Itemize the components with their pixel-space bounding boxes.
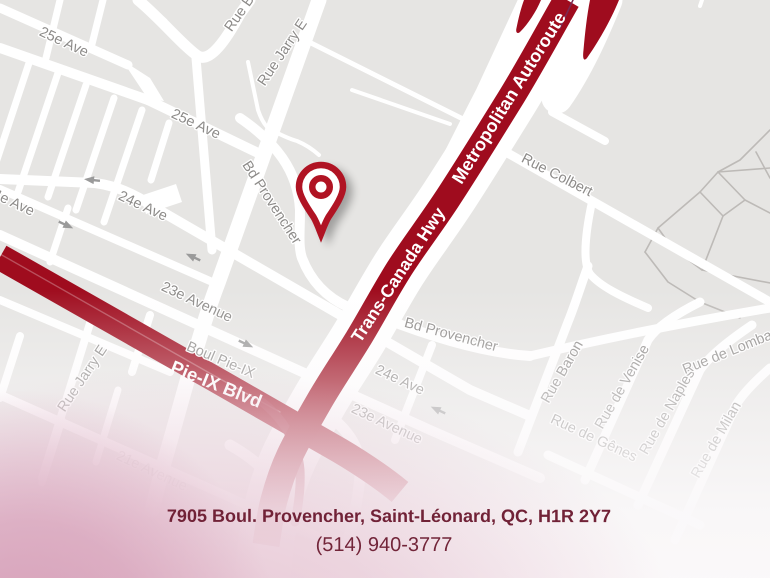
svg-text:7905 Boul. Provencher, Saint-L: 7905 Boul. Provencher, Saint-Léonard, QC…	[167, 506, 611, 526]
svg-text:(514) 940-3777: (514) 940-3777	[316, 534, 453, 556]
